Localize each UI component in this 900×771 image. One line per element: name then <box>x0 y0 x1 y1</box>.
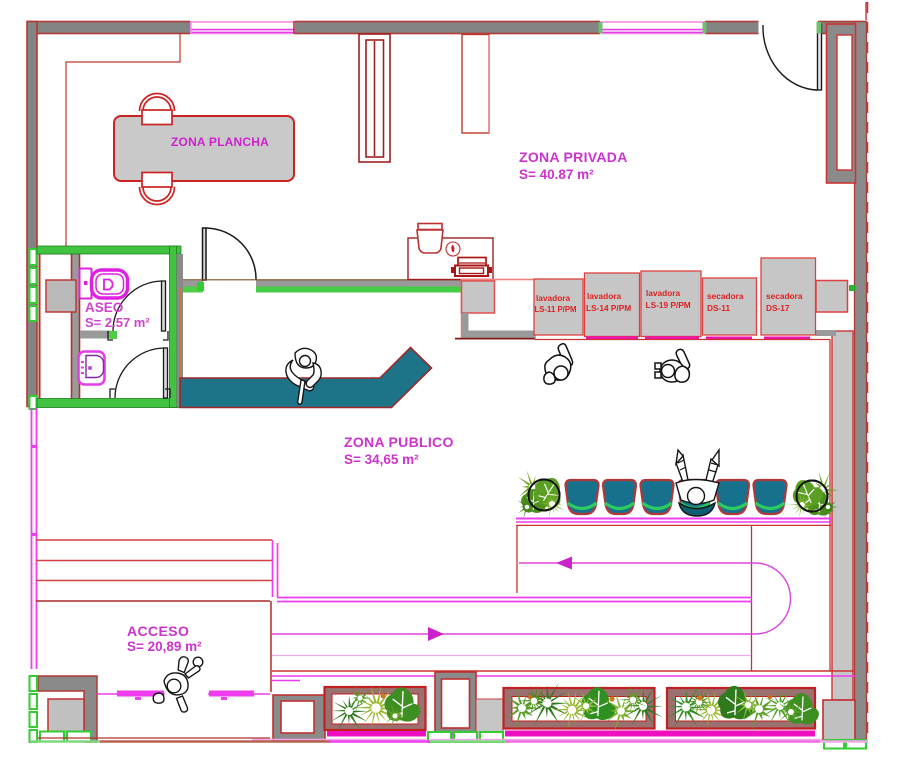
svg-text:ZONA PRIVADA: ZONA PRIVADA <box>519 149 628 165</box>
svg-text:S= 34,65 m²: S= 34,65 m² <box>344 452 419 467</box>
svg-text:DS-17: DS-17 <box>766 303 790 313</box>
svg-text:secadora: secadora <box>707 291 744 301</box>
svg-text:DS-11: DS-11 <box>707 303 730 313</box>
svg-text:ZONA PLANCHA: ZONA PLANCHA <box>171 135 269 149</box>
svg-text:ACCESO: ACCESO <box>127 623 189 639</box>
svg-text:LS-11 P/PM: LS-11 P/PM <box>535 305 577 314</box>
svg-text:S= 20,89 m²: S= 20,89 m² <box>127 639 202 654</box>
svg-text:secadora: secadora <box>766 291 803 301</box>
svg-text:lavadora: lavadora <box>536 293 571 303</box>
svg-text:LS-19 P/PM: LS-19 P/PM <box>646 300 691 310</box>
svg-text:LS-14 P/PM: LS-14 P/PM <box>586 303 631 313</box>
svg-text:ASEO: ASEO <box>85 300 123 315</box>
svg-text:S= 2.57 m²: S= 2.57 m² <box>85 315 150 330</box>
svg-text:lavadora: lavadora <box>587 291 622 301</box>
svg-text:S= 40.87 m²: S= 40.87 m² <box>519 167 594 182</box>
svg-text:ZONA PUBLICO: ZONA PUBLICO <box>344 434 454 450</box>
svg-text:lavadora: lavadora <box>646 288 681 298</box>
